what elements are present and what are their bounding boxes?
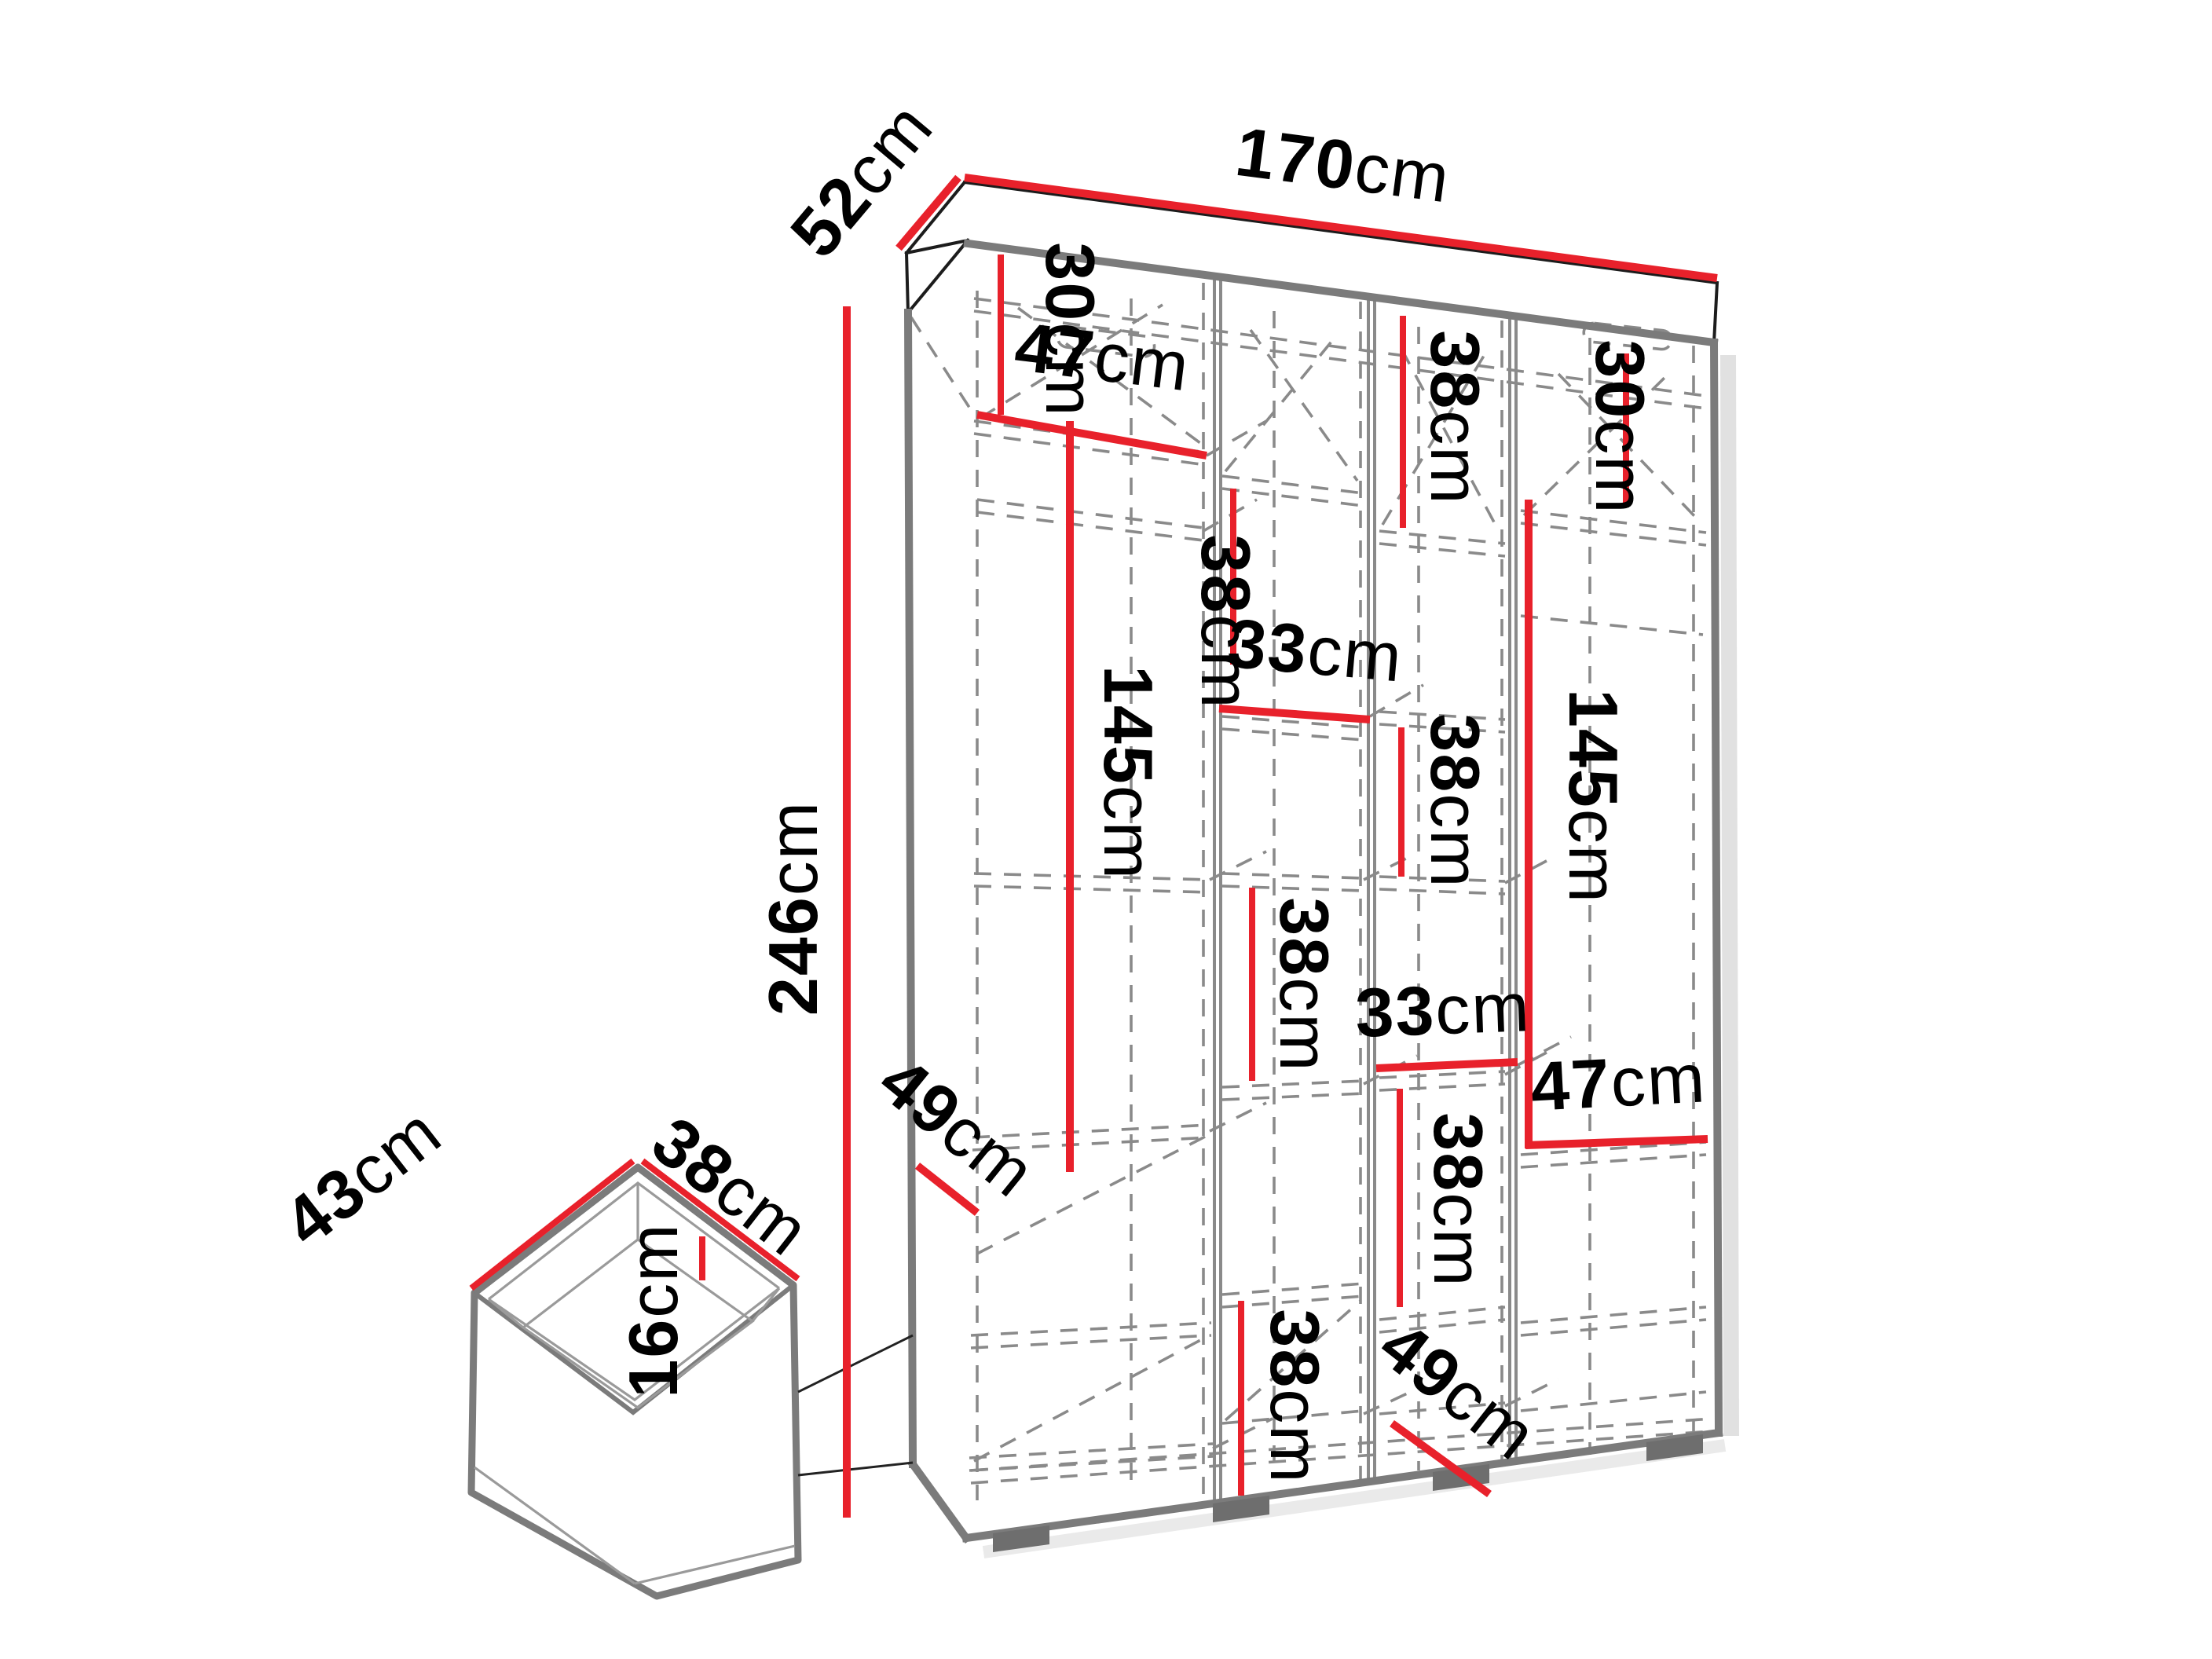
- dim-label-col3-lower: 38cm: [1419, 1112, 1497, 1287]
- dim-label-col3-mid: 38cm: [1416, 713, 1494, 888]
- dim-label-col2-mid: 38cm: [1265, 897, 1343, 1072]
- dim-label-col1-bottom-depth: 49cm: [865, 1042, 1050, 1212]
- dim-label-col4-hanging: 145cm: [1555, 689, 1632, 904]
- dim-label-depth: 52cm: [775, 87, 947, 272]
- drawer-pointer-lines: [798, 1335, 913, 1475]
- dim-label-col2-bottom: 38cm: [1256, 1309, 1334, 1484]
- dim-label-col1-hanging: 145cm: [1090, 665, 1167, 881]
- dim-label-width: 170cm: [1232, 112, 1456, 218]
- wardrobe-dimension-diagram: 170cm 52cm 246cm 30cm 47cm 145cm 49cm 38…: [0, 0, 2212, 1659]
- dim-label-col2-shelf: 33cm: [1225, 604, 1406, 697]
- dim-label-drawer-width: 43cm: [269, 1092, 456, 1261]
- dim-label-col3-shelf: 33cm: [1354, 968, 1533, 1052]
- dim-label-height: 246cm: [754, 800, 832, 1016]
- dim-label-col3-top: 38cm: [1416, 330, 1494, 505]
- dim-label-drawer-height: 16cm: [614, 1222, 692, 1397]
- dim-label-col4-top: 30cm: [1581, 339, 1659, 515]
- dim-label-col4-shelf: 47cm: [1529, 1038, 1708, 1126]
